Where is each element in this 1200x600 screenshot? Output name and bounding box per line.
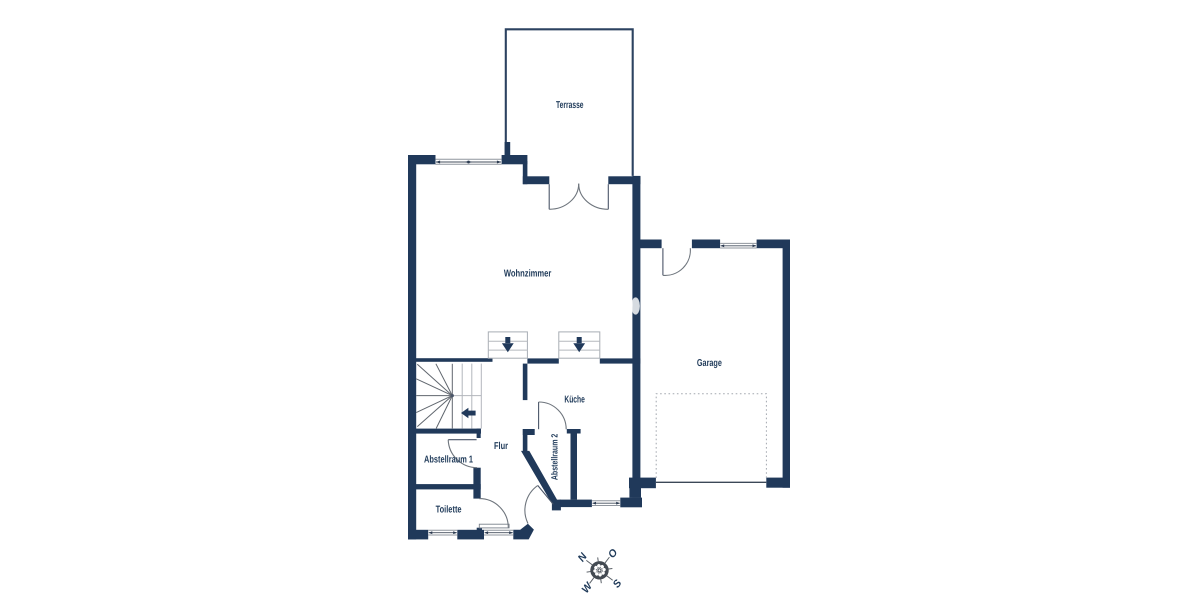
svg-text:Abstellraum 2: Abstellraum 2 [550,434,560,481]
svg-text:Garage: Garage [697,358,722,369]
svg-text:Flur: Flur [494,441,508,452]
svg-text:Wohnzimmer: Wohnzimmer [504,269,552,280]
svg-text:Abstellraum 1: Abstellraum 1 [424,454,473,465]
svg-text:Küche: Küche [564,395,585,406]
svg-text:Terrasse: Terrasse [556,100,584,111]
svg-text:Toilette: Toilette [436,504,462,515]
